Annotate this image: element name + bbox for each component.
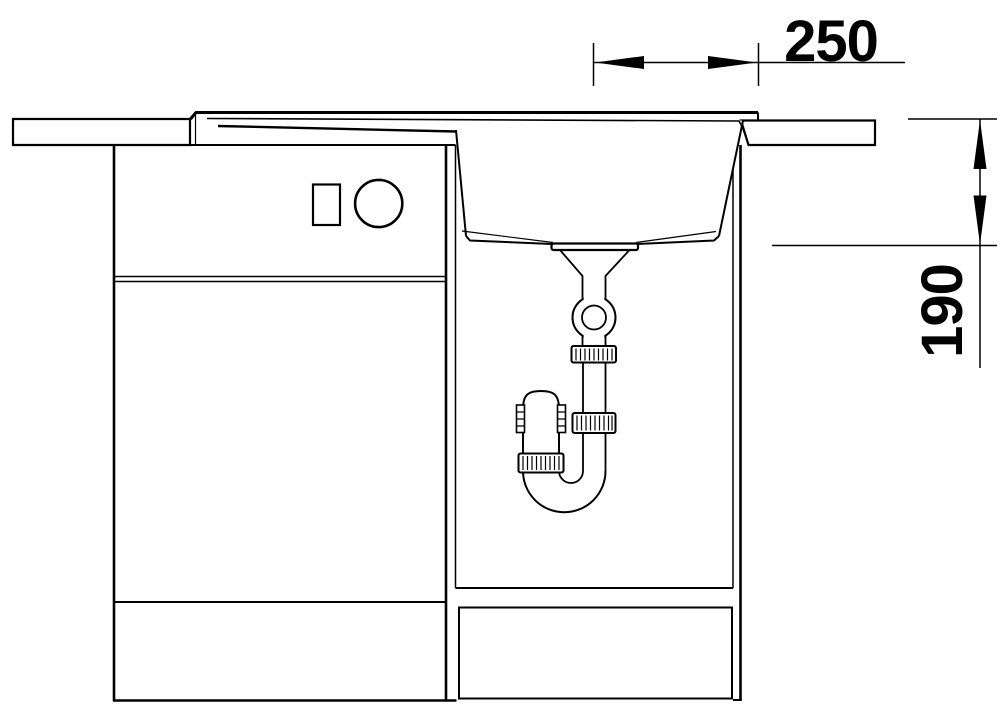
countertop-right-slab — [741, 121, 875, 146]
dimension-250: 250 — [594, 9, 906, 86]
dim-190-arrow-up — [974, 120, 987, 169]
ball-joint-mask-top — [584, 290, 605, 306]
sink — [191, 113, 759, 251]
plinth-recess-panel — [459, 608, 732, 699]
bowl-body — [456, 121, 743, 251]
u-bend-outer — [523, 471, 606, 512]
sink-installation-drawing: 250 190 — [0, 0, 1000, 711]
drainboard-surface — [218, 126, 456, 132]
dim-190-arrow-down — [974, 196, 987, 245]
downpipe-upper — [583, 363, 606, 414]
drawing-canvas: 250 190 — [0, 0, 1000, 711]
dim-250-label: 250 — [784, 9, 878, 74]
ball-joint-mask-bottom — [584, 330, 605, 347]
strainer-flange — [552, 244, 639, 251]
appliance-button — [313, 185, 340, 226]
ball-joint-inner — [582, 306, 606, 330]
outlet-elbow-dome — [523, 391, 559, 409]
dim-250-arrow-right — [708, 56, 757, 69]
drain-trap — [517, 244, 639, 513]
downpipe-lower — [583, 433, 606, 471]
countertop-left-slab — [13, 119, 190, 145]
dimension-190: 190 — [772, 119, 997, 368]
appliance-knob — [355, 180, 402, 227]
dim-250-arrow-left — [595, 56, 644, 69]
dim-190-label: 190 — [910, 264, 975, 358]
